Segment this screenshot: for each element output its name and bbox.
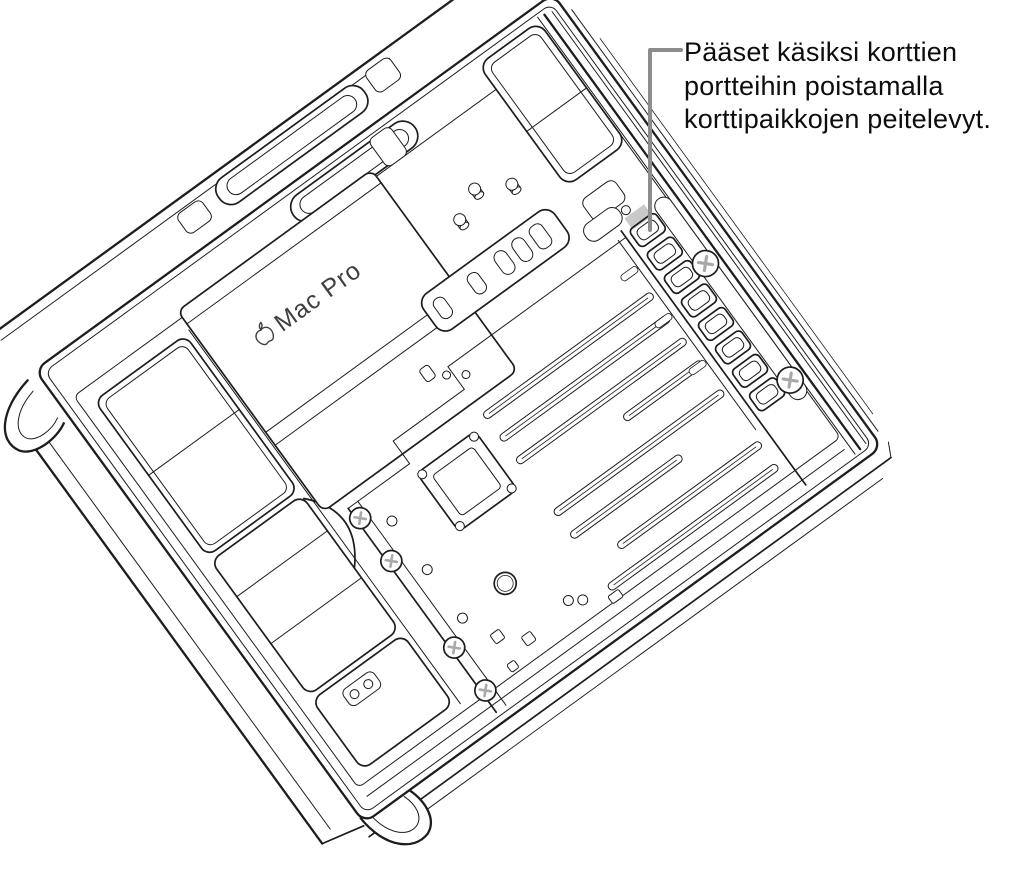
caption-line-1: Pääset käsiksi korttien [684, 36, 1029, 70]
caption-line-3: korttipaikkojen peitelevyt. [684, 103, 1029, 137]
page: Mac Pro [0, 0, 1032, 875]
callout-caption: Pääset käsiksi korttien portteihin poist… [684, 36, 1029, 137]
caption-line-2: portteihin poistamalla [684, 70, 1029, 104]
